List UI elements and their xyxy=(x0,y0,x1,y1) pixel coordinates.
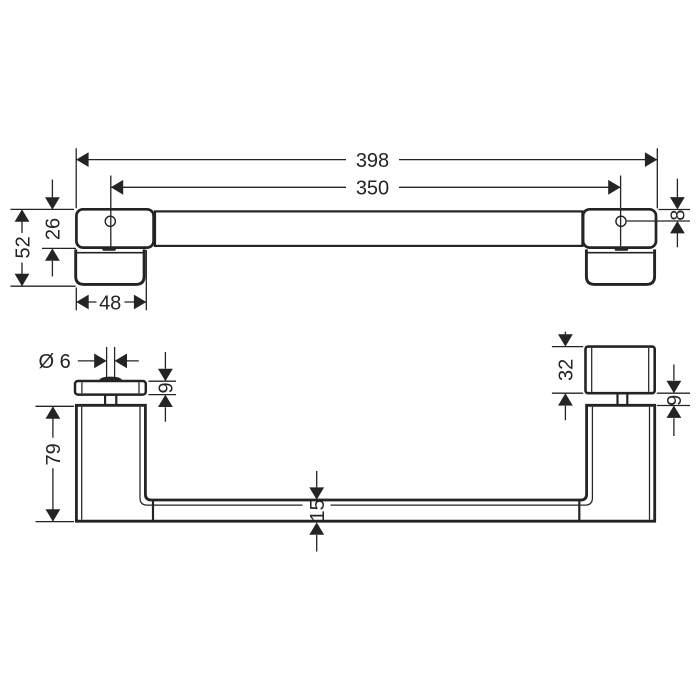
svg-text:350: 350 xyxy=(356,178,389,200)
svg-text:9: 9 xyxy=(664,395,686,406)
svg-text:9: 9 xyxy=(156,382,178,393)
svg-text:8: 8 xyxy=(668,210,690,221)
svg-text:Ø 6: Ø 6 xyxy=(38,351,70,373)
svg-text:32: 32 xyxy=(556,359,578,381)
svg-text:79: 79 xyxy=(43,443,65,465)
svg-text:26: 26 xyxy=(43,218,65,240)
svg-text:48: 48 xyxy=(99,292,121,314)
svg-text:15: 15 xyxy=(307,499,329,521)
svg-text:398: 398 xyxy=(356,150,389,172)
svg-text:52: 52 xyxy=(12,236,34,258)
